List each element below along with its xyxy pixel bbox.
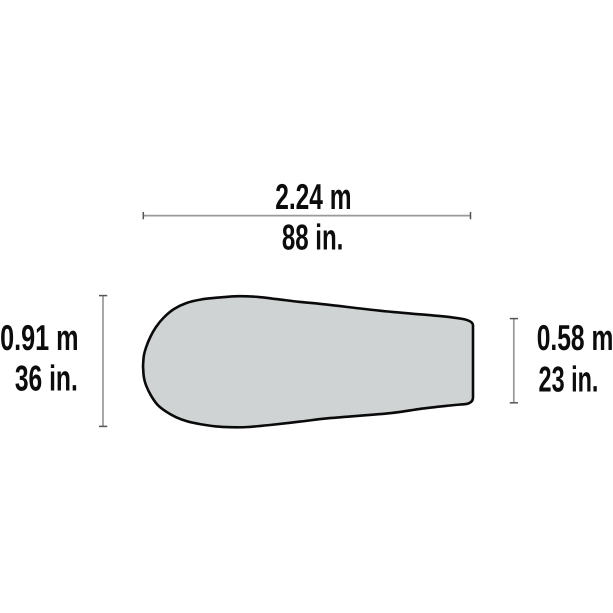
svg-text:2.24 m: 2.24 m (275, 176, 351, 217)
svg-text:88 in.: 88 in. (282, 217, 344, 258)
svg-text:23 in.: 23 in. (539, 358, 599, 399)
svg-text:0.58 m: 0.58 m (537, 317, 613, 358)
svg-text:36 in.: 36 in. (15, 358, 78, 399)
svg-text:0.91 m: 0.91 m (0, 317, 78, 358)
